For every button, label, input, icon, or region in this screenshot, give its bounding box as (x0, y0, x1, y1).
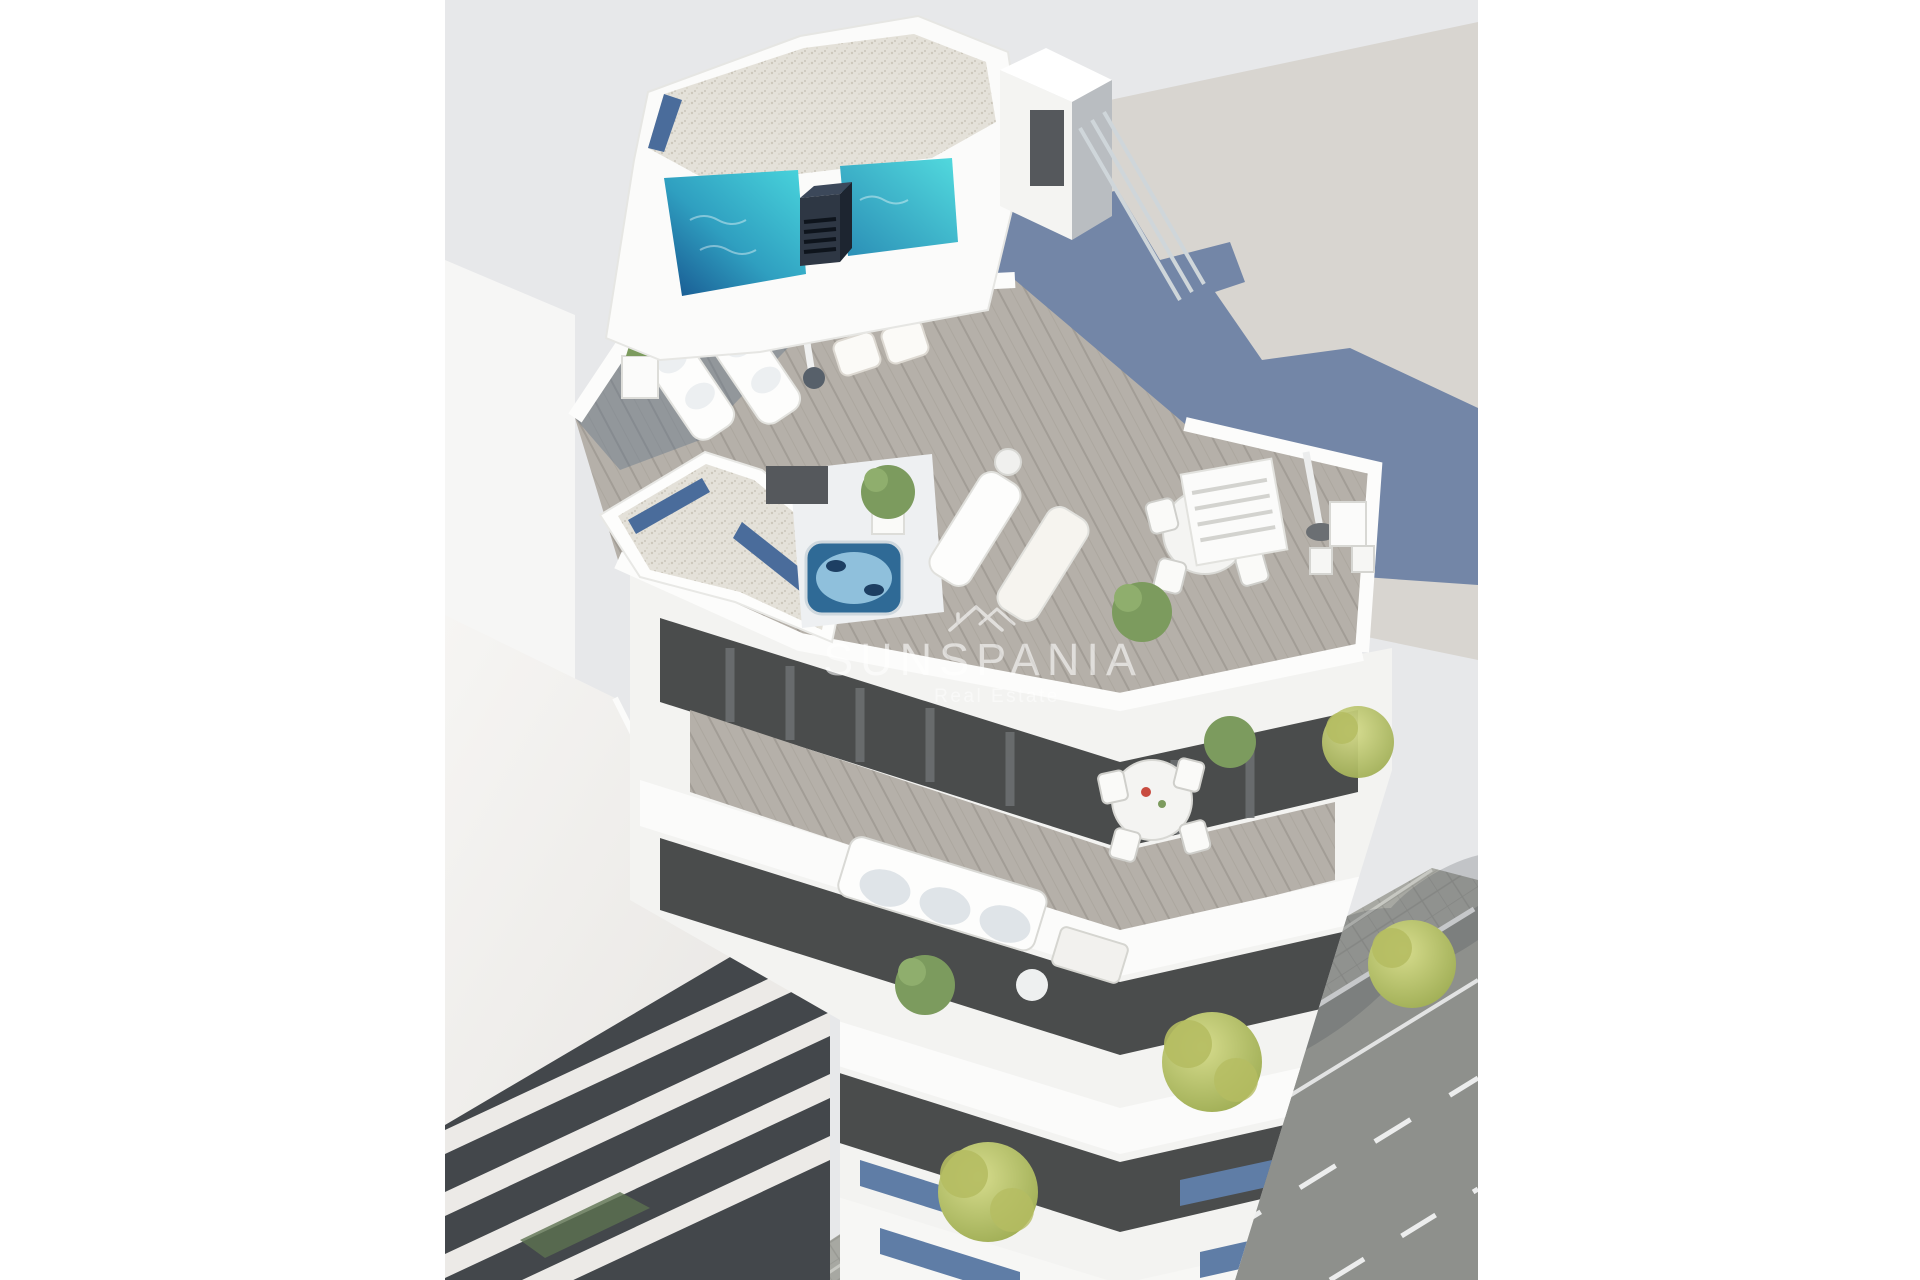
bar-table (1330, 502, 1366, 546)
architectural-render: SUNSPANIA Real Estate (0, 0, 1920, 1280)
balcony-plant-2 (1204, 716, 1256, 768)
bar-stool (1352, 546, 1374, 572)
bar-stool (1310, 548, 1332, 574)
rooftop-pool (664, 170, 806, 296)
louver-box (1181, 459, 1288, 566)
parasol-base (803, 367, 825, 389)
penthouse-window (766, 466, 828, 504)
chimney-vent (800, 182, 852, 266)
stair-bulkhead (1000, 48, 1112, 240)
tree (1322, 706, 1394, 778)
tree (938, 1142, 1038, 1242)
roof-door (1030, 110, 1064, 186)
planter-pot (622, 356, 658, 398)
render-scene (0, 0, 1920, 1280)
rooftop-pool-2 (840, 158, 958, 256)
tree (1162, 1012, 1262, 1112)
deck-side-table (995, 449, 1021, 475)
side-table (1016, 969, 1048, 1001)
tree (1368, 920, 1456, 1008)
